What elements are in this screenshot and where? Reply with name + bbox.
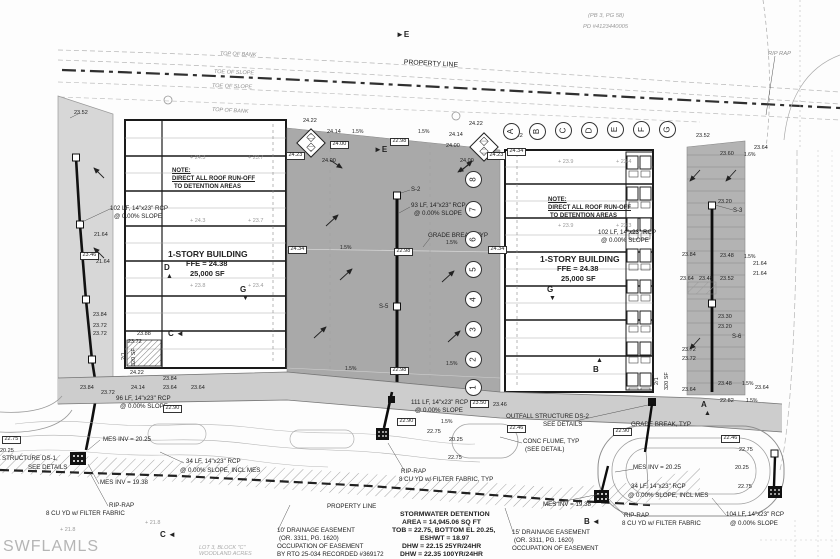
grid-bubble-label: 4 — [468, 297, 477, 301]
grid-row-8: 8 — [465, 171, 482, 188]
grid-column-D: D — [581, 122, 598, 139]
grid-row-6: 6 — [465, 231, 482, 248]
grid-bubbles-layer: ABCDEFG87654321 — [0, 0, 840, 559]
grid-bubble-label: F — [636, 127, 645, 132]
grid-column-E: E — [607, 121, 624, 138]
grid-bubble-label: A — [507, 128, 516, 133]
grid-bubble-label: C — [559, 127, 568, 133]
grid-column-A: A — [503, 123, 520, 140]
grid-row-5: 5 — [465, 261, 482, 278]
grid-row-2: 2 — [465, 351, 482, 368]
grid-bubble-label: 7 — [468, 207, 477, 211]
grid-bubble-label: G — [662, 126, 671, 132]
grid-column-C: C — [555, 122, 572, 139]
grid-column-B: B — [529, 123, 546, 140]
grid-bubble-label: B — [533, 128, 542, 133]
grid-column-F: F — [633, 121, 650, 138]
grid-bubble-label: 6 — [468, 237, 477, 241]
grid-bubble-label: 3 — [468, 327, 477, 331]
grid-bubble-label: 2 — [468, 357, 477, 361]
grid-bubble-label: E — [611, 126, 620, 131]
grid-bubble-label: 8 — [468, 177, 477, 181]
grid-bubble-label: 1 — [468, 385, 477, 389]
grid-row-7: 7 — [465, 201, 482, 218]
watermark: SWFLAMLS — [3, 538, 99, 556]
grid-row-3: 3 — [465, 321, 482, 338]
grid-bubble-label: 5 — [468, 267, 477, 271]
grid-row-4: 4 — [465, 291, 482, 308]
grid-column-G: G — [659, 121, 676, 138]
grid-bubble-label: D — [585, 127, 594, 133]
grid-row-1: 1 — [465, 379, 482, 396]
site-plan: PROPERTY LINETOP OF BANKTOE OF SLOPETOE … — [0, 0, 840, 559]
